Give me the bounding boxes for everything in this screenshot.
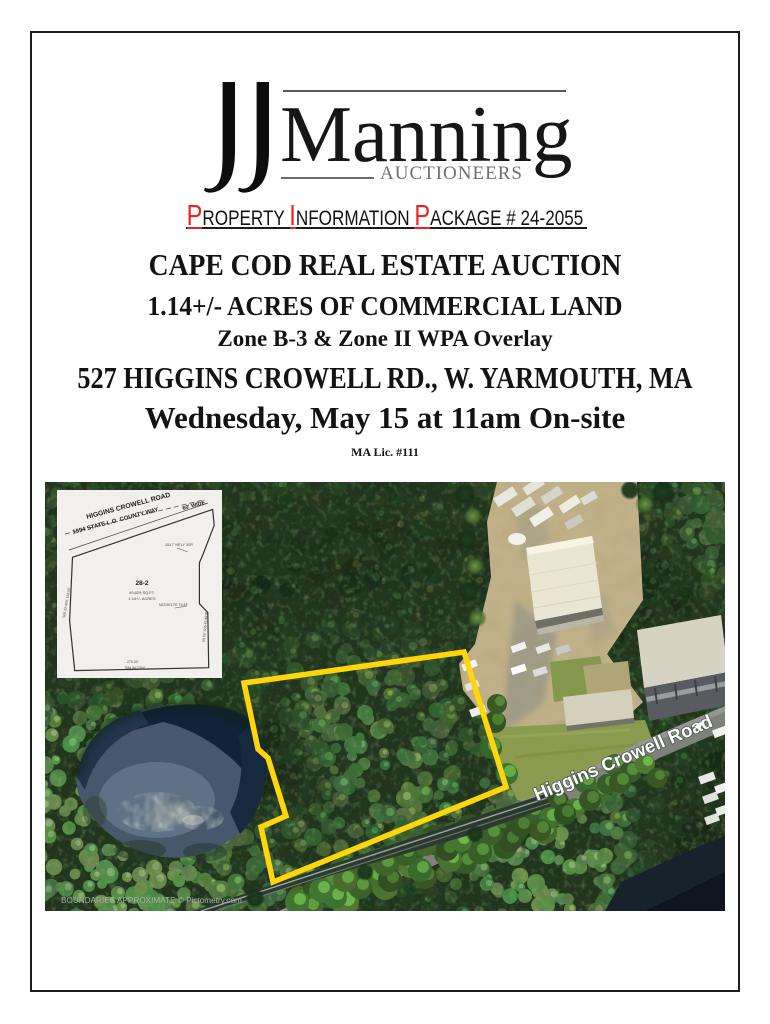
svg-text:1.14+/- ACRES: 1.14+/- ACRES — [128, 596, 156, 601]
svg-text:BOUNDARIES APPROXIMATE © Picto: BOUNDARIES APPROXIMATE © Pictometry.com — [61, 896, 242, 905]
svg-text:270.00': 270.00' — [127, 660, 139, 664]
svg-text:S84 54'23'W: S84 54'23'W — [125, 666, 145, 670]
svg-text:49,829 SQ.FT.: 49,829 SQ.FT. — [129, 590, 155, 595]
svg-text:28-2: 28-2 — [135, 580, 148, 587]
svg-text:153.7' NE'LY 30'R: 153.7' NE'LY 30'R — [165, 543, 193, 547]
